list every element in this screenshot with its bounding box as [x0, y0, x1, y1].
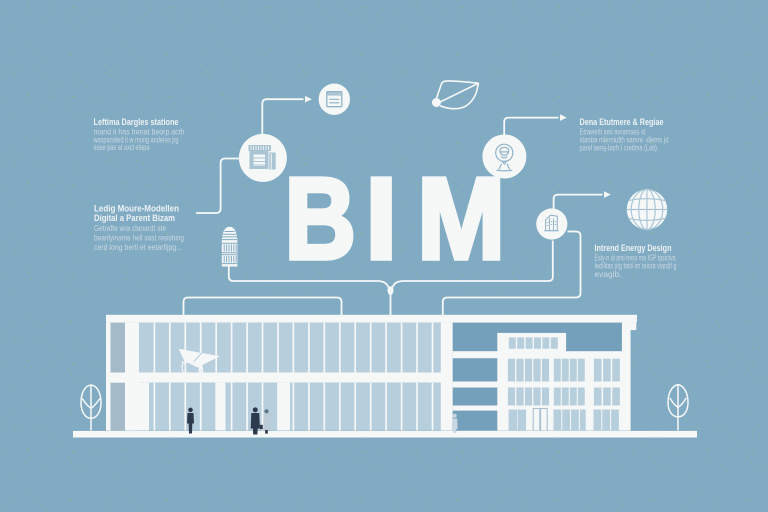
- svg-text:Dena Etutmere & Regiae: Dena Etutmere & Regiae: [580, 117, 664, 127]
- svg-text:cerd long berti et eetarfijpg: cerd long berti et eetarfijpg...: [94, 243, 182, 252]
- svg-text:beanlyiname hell sast resishin: beanlyiname hell sast resishing: [94, 234, 184, 243]
- svg-text:B: B: [285, 153, 356, 283]
- svg-text:ease pas at axcl etapa: ease pas at axcl etapa: [94, 143, 150, 152]
- svg-text:Digital a Parent Bizam: Digital a Parent Bizam: [94, 213, 175, 223]
- svg-text:parel aerej-barh I cretlma (La: parel aerej-barh I cretlma (Lati).: [580, 144, 659, 153]
- svg-text:Leftima Dargles statione: Leftima Dargles statione: [94, 117, 179, 127]
- svg-text:evagib.: evagib.: [595, 270, 622, 279]
- svg-text:M: M: [417, 154, 505, 284]
- svg-text:I: I: [365, 154, 397, 284]
- svg-text:Getrafte wra clanardt ste: Getrafte wra clanardt ste: [94, 224, 166, 233]
- svg-text:Ledig Moure-Modellen: Ledig Moure-Modellen: [94, 204, 179, 214]
- svg-text:Intrend Energy Design: Intrend Energy Design: [595, 243, 672, 253]
